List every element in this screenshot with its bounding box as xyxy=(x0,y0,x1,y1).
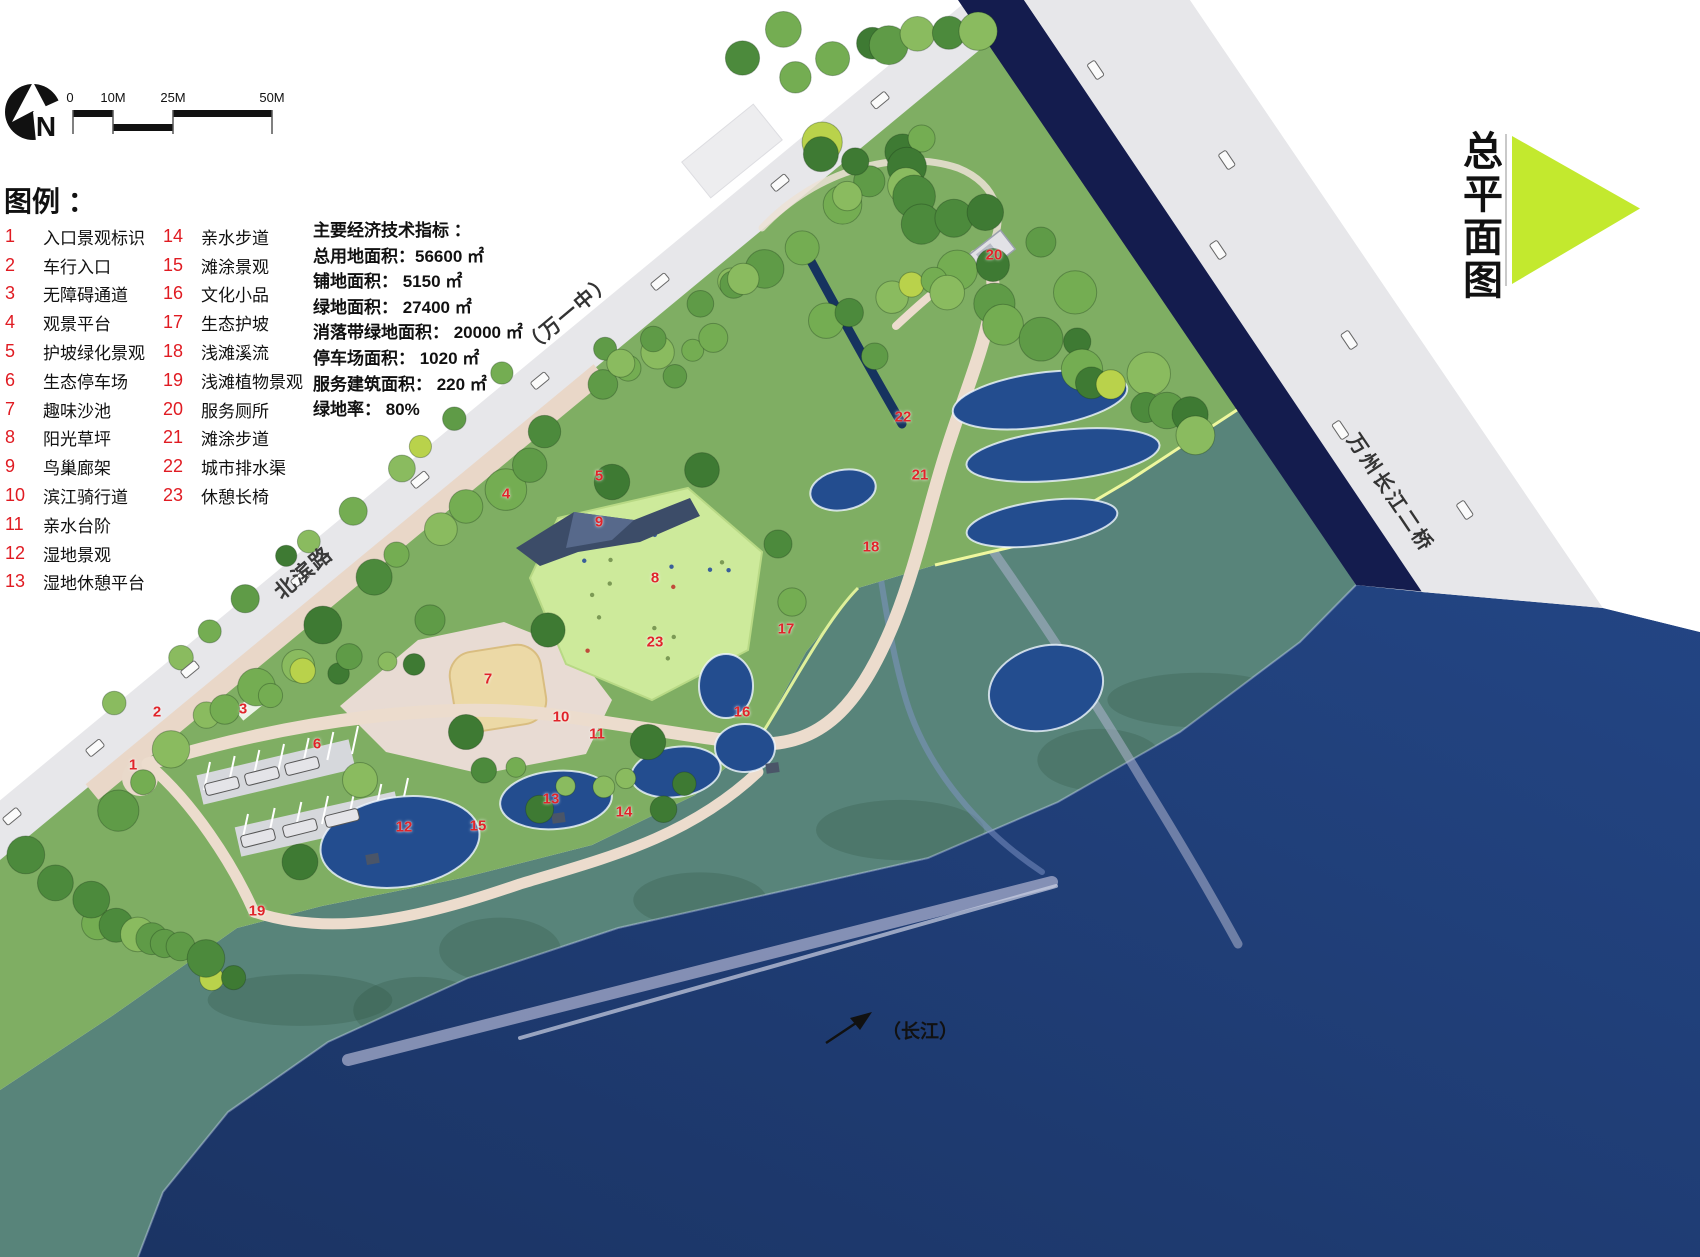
legend-item-11: 11亲水台阶 xyxy=(5,510,165,539)
legend-item-16: 16文化小品 xyxy=(163,280,313,309)
legend-item-20: 20服务厕所 xyxy=(163,395,313,424)
north-label: N xyxy=(36,111,56,142)
legend-item-13: 13湿地休憩平台 xyxy=(5,568,165,597)
svg-text:25M: 25M xyxy=(160,90,185,105)
legend-item-9: 9鸟巢廊架 xyxy=(5,452,165,481)
legend-item-12: 12湿地景观 xyxy=(5,539,165,568)
legend-item-5: 5护坡绿化景观 xyxy=(5,337,165,366)
legend-item-23: 23休憩长椅 xyxy=(163,481,313,510)
north-scale-group: N 0 10M 25M 50M xyxy=(0,78,300,153)
legend-title: 图例 ： xyxy=(4,180,96,220)
legend-item-7: 7趣味沙池 xyxy=(5,395,165,424)
svg-text:50M: 50M xyxy=(259,90,284,105)
indicator-total-area: 总用地面积：56600 ㎡ xyxy=(313,244,553,270)
economic-indicators: 主要经济技术指标 ： 总用地面积：56600 ㎡ 铺地面积： 5150 ㎡ 绿地… xyxy=(313,218,553,423)
legend-item-14: 14亲水步道 xyxy=(163,222,313,251)
legend-item-21: 21滩涂步道 xyxy=(163,424,313,453)
river-label: （长江） xyxy=(882,1017,958,1044)
legend-item-3: 3无障碍通道 xyxy=(5,280,165,309)
indicator-building-area: 服务建筑面积： 220 ㎡ xyxy=(313,372,553,398)
legend-item-19: 19浅滩植物景观 xyxy=(163,366,313,395)
title-divider xyxy=(1505,134,1507,286)
site-plan-map xyxy=(0,0,1700,1257)
legend-item-2: 2车行入口 xyxy=(5,251,165,280)
legend-item-1: 1入口景观标识 xyxy=(5,222,165,251)
scale-bar: 0 10M 25M 50M xyxy=(66,90,284,134)
legend-item-4: 4观景平台 xyxy=(5,308,165,337)
legend-item-15: 15滩涂景观 xyxy=(163,251,313,280)
legend-item-6: 6生态停车场 xyxy=(5,366,165,395)
plan-title: 总平面图 xyxy=(1450,130,1508,302)
indicator-green-ratio: 绿地率： 80% xyxy=(313,397,553,423)
svg-text:0: 0 xyxy=(66,90,73,105)
site-plan-page: N 0 10M 25M 50M 图例 ： 1入口景观标识 2车行入口 3无障碍通… xyxy=(0,0,1700,1257)
legend-item-17: 17生态护坡 xyxy=(163,308,313,337)
indicators-title: 主要经济技术指标 ： xyxy=(313,218,553,244)
indicator-parking-area: 停车场面积： 1020 ㎡ xyxy=(313,346,553,372)
indicator-green-area: 绿地面积： 27400 ㎡ xyxy=(313,295,553,321)
indicator-paving-area: 铺地面积： 5150 ㎡ xyxy=(313,269,553,295)
legend-column-1: 1入口景观标识 2车行入口 3无障碍通道 4观景平台 5护坡绿化景观 6生态停车… xyxy=(5,222,165,596)
legend-item-10: 10滨江骑行道 xyxy=(5,481,165,510)
north-arrow-icon: N 0 10M 25M 50M xyxy=(0,78,300,148)
legend-column-2: 14亲水步道 15滩涂景观 16文化小品 17生态护坡 18浅滩溪流 19浅滩植… xyxy=(163,222,313,510)
legend-item-18: 18浅滩溪流 xyxy=(163,337,313,366)
legend-item-22: 22城市排水渠 xyxy=(163,452,313,481)
legend-item-8: 8阳光草坪 xyxy=(5,424,165,453)
indicator-drawdown-area: 消落带绿地面积： 20000 ㎡ xyxy=(313,320,553,346)
svg-text:10M: 10M xyxy=(100,90,125,105)
